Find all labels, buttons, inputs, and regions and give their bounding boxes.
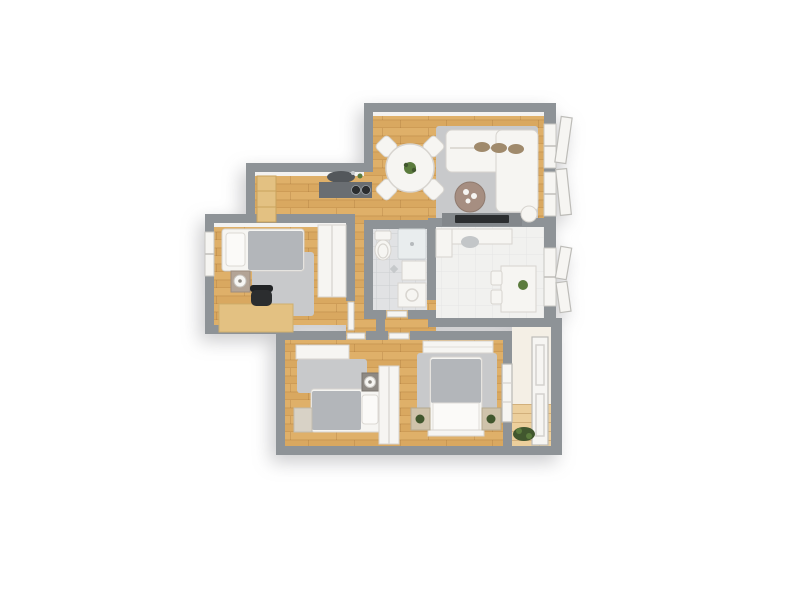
coffee-table-cup-2 [471, 193, 477, 199]
wardrobe-bl-top [296, 345, 349, 359]
breakfast-plant [518, 280, 528, 290]
toilet-tank [375, 231, 391, 240]
kitchen-plant [358, 174, 363, 179]
wall-master-balcony-a [503, 331, 512, 364]
door-bedroom-master [389, 333, 409, 339]
breakfast-chair-1 [491, 271, 502, 285]
wall-bedroom-left-right [346, 221, 355, 301]
coffee-table-cup-1 [463, 189, 469, 195]
window-panel-living-1 [555, 116, 572, 163]
wall-master-balcony-b [503, 422, 512, 446]
floor-plan-page [0, 0, 800, 600]
shower-drain [410, 242, 414, 246]
door-balcony-glass [502, 364, 512, 422]
nightstand-master-2-plant [487, 415, 496, 424]
floorplan-svg [0, 0, 800, 600]
wall-top-face [373, 112, 544, 116]
kitchen-cabinet [257, 176, 276, 222]
lamp-left-bedroom-center [238, 279, 242, 283]
wall-bottom [276, 446, 562, 455]
cooktop-burner-2 [362, 186, 371, 195]
bed-bl-blanket [312, 391, 361, 430]
dining-counter-sink [461, 236, 479, 248]
window-panel-dining-2 [556, 281, 571, 312]
breakfast-table [501, 266, 536, 312]
wall-top [364, 103, 556, 112]
window-panel-living-2 [556, 169, 572, 216]
sofa-chaise [496, 130, 538, 212]
sofa-cushion-1 [474, 142, 490, 152]
dresser-bl [294, 408, 312, 432]
lamp-bl-center [368, 380, 372, 384]
wall-bathroom-right [427, 220, 436, 300]
dining-counter-leg [436, 229, 452, 257]
sofa-cushion-2 [491, 143, 507, 153]
bed-master-sheet [433, 403, 479, 430]
wall-bathroom-bottom-b [408, 310, 436, 319]
rug-bedroom-bottom-left [297, 359, 367, 393]
bed-left-blanket [248, 231, 303, 270]
wall-entry-left [364, 103, 373, 172]
washing-machine [398, 283, 426, 307]
wall-bathroom-top [364, 220, 434, 229]
nightstand-master-1-plant [416, 415, 425, 424]
dining-table-plant-leaf-1 [404, 163, 408, 167]
cooktop-burner-1 [352, 186, 361, 195]
breakfast-chair-2 [491, 290, 502, 304]
pouf [521, 206, 537, 222]
wall-bathroom-left [364, 220, 373, 319]
window-panel-dining-1 [555, 246, 571, 279]
kitchen-faucet [351, 171, 355, 175]
bed-left-pillow [226, 233, 245, 266]
bed-master-blanket [431, 359, 481, 403]
sofa-cushion-3 [508, 144, 524, 154]
balcony-plant-leaf-2 [526, 433, 532, 439]
wall-bedroom-left-top [205, 214, 355, 223]
wall-balcony-right [551, 318, 562, 455]
toilet-bowl [375, 240, 391, 260]
balcony-plant-leaf-1 [516, 428, 522, 434]
coffee-table [455, 182, 485, 212]
door-balcony-open-leaf [532, 337, 548, 445]
bath-cabinet [402, 261, 426, 280]
wall-dining-bottom [428, 318, 551, 327]
coffee-table-cup-3 [466, 199, 471, 204]
balcony-plant [513, 427, 535, 441]
desk-chair-seat [251, 290, 272, 306]
floorplan-shapes-group [205, 103, 572, 455]
wall-bedrooms-top-a [366, 331, 388, 340]
door-bedroom-left [348, 302, 354, 330]
door-bedroom-bottom-left [347, 333, 365, 339]
bed-master-headboard [428, 430, 484, 436]
desk [219, 304, 293, 332]
dining-table-plant-leaf-2 [412, 168, 416, 172]
wall-outer-left-lower [276, 325, 285, 455]
wall-bathroom-bottom-a [364, 310, 386, 319]
tv [455, 215, 509, 223]
door-bathroom [387, 311, 407, 317]
kitchen-sink [327, 171, 355, 183]
bed-bl-pillow [362, 395, 378, 424]
wall-bedrooms-top-b [410, 331, 512, 340]
wall-kitchen-top [246, 163, 373, 172]
